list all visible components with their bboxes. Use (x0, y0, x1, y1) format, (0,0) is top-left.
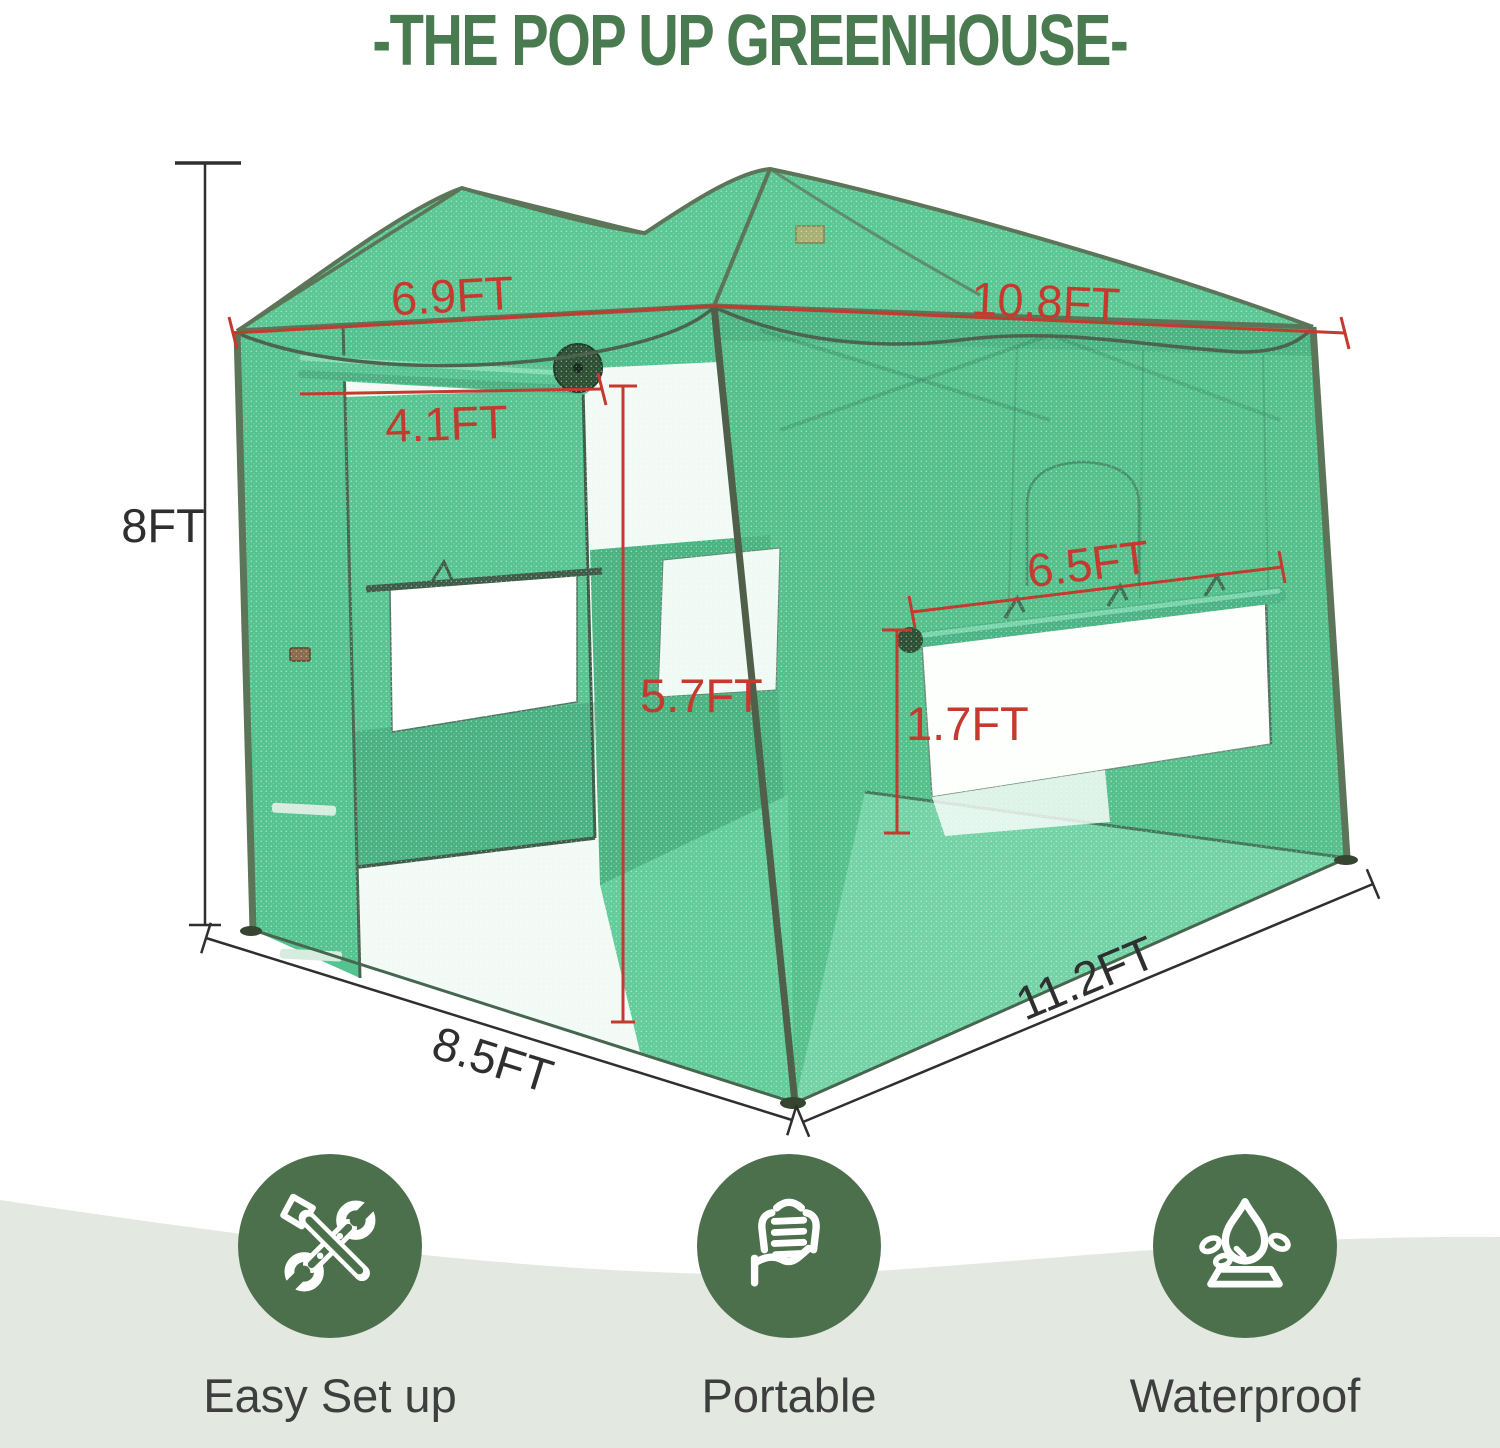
feature-label: Easy Set up (165, 1368, 495, 1423)
greenhouse-infographic: 6.9FT 10.8FT 4.1FT 6.5FT 5.7FT 1.7FT 8FT… (0, 0, 1500, 1448)
feature-portable: Portable (624, 1154, 954, 1423)
dim-base-depth: 8.5FT (426, 1016, 559, 1103)
page-title-text: -THE POP UP GREENHOUSE- (373, 0, 1128, 82)
dim-height: 8FT (121, 499, 205, 552)
feature-label: Waterproof (1080, 1368, 1410, 1423)
waterproof-icon (1153, 1154, 1337, 1338)
dim-side-window-height: 1.7FT (906, 697, 1029, 750)
dim-roof-front-width: 6.9FT (389, 266, 514, 325)
feature-easy-setup: Easy Set up (165, 1154, 495, 1423)
feature-label: Portable (624, 1368, 954, 1423)
page-title: -THE POP UP GREENHOUSE- (0, 0, 1500, 102)
dim-roof-side-length: 10.8FT (970, 272, 1121, 331)
feature-list: Easy Set up Portable (0, 1154, 1500, 1434)
tools-icon (238, 1154, 422, 1338)
greenhouse-illustration (200, 150, 1400, 1130)
portable-hand-icon (697, 1154, 881, 1338)
dim-door-height: 5.7FT (640, 669, 763, 722)
feature-waterproof: Waterproof (1080, 1154, 1410, 1423)
dim-door-width: 4.1FT (384, 395, 509, 452)
